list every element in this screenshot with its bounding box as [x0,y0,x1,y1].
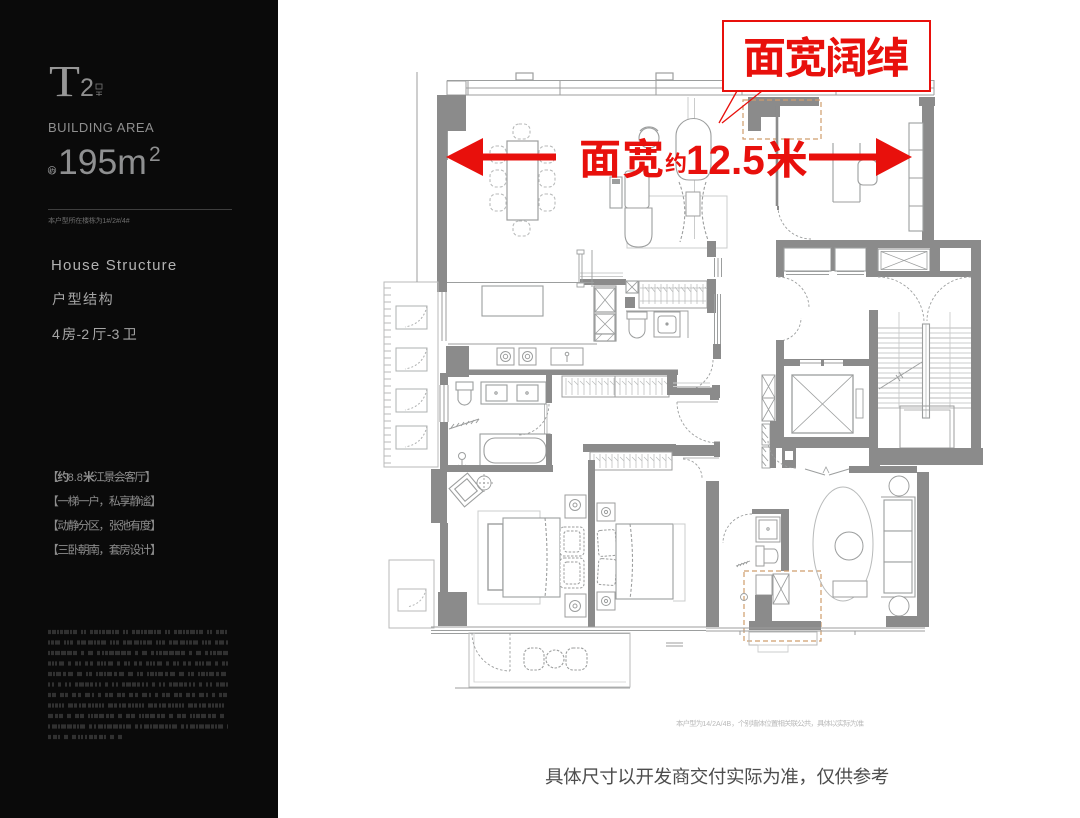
svg-text:House Structure: House Structure [51,257,177,274]
svg-text:-3: -3 [107,327,120,343]
svg-text:14/2A/4B: 14/2A/4B [702,721,731,728]
svg-text:BUILDING AREA: BUILDING AREA [48,120,154,135]
svg-text:2: 2 [80,74,94,102]
svg-text:T: T [49,57,80,106]
svg-text:4: 4 [52,327,60,343]
svg-text:-2: -2 [77,327,90,343]
svg-text:1#/2#/4#: 1#/2#/4# [102,218,129,225]
svg-text:2: 2 [149,143,161,166]
svg-text:12.5: 12.5 [686,137,765,183]
svg-text:8.8: 8.8 [68,472,83,484]
svg-text:195m: 195m [58,142,147,182]
